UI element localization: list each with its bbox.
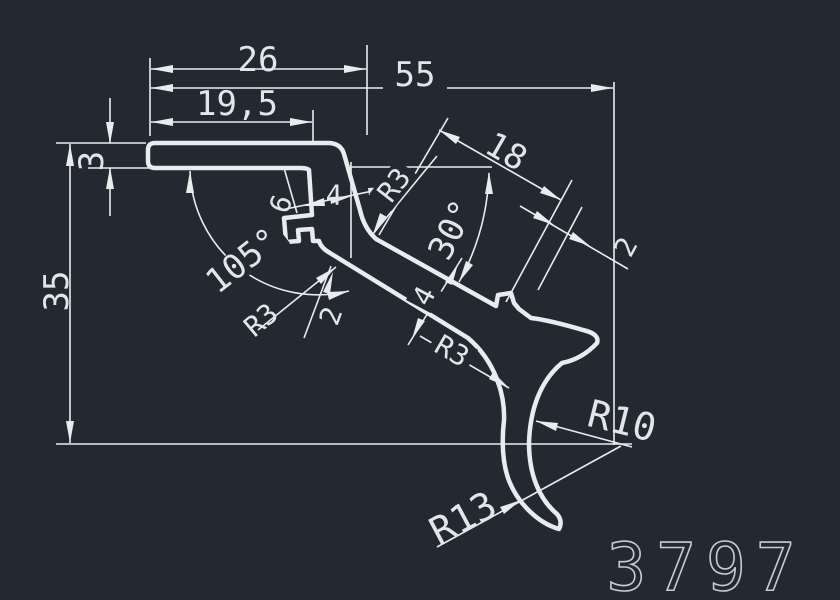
arrowhead <box>151 65 173 73</box>
dim-overall-width: 55 <box>395 55 436 95</box>
arrowhead <box>540 186 561 200</box>
dim-overall-height: 35 <box>37 271 77 312</box>
dim-inner-fillet: R3 <box>237 297 284 344</box>
arrowhead <box>186 171 194 193</box>
arrowhead <box>569 232 590 246</box>
arrowhead <box>327 291 349 300</box>
dim-flange-thickness: 3 <box>72 151 112 171</box>
arrowhead <box>485 172 493 194</box>
dim-leg-angle: 30° <box>421 194 484 267</box>
arrowhead <box>412 318 425 339</box>
arrowhead <box>344 65 366 73</box>
ext-line-18-right <box>506 180 572 302</box>
arrowhead <box>66 421 74 443</box>
arrowhead <box>151 118 173 126</box>
dim-bend-fillet: R3 <box>371 162 418 209</box>
dim-prong-thickness: 2 <box>607 232 644 262</box>
dim-hook-outer-radius: R13 <box>422 482 503 553</box>
dim-wall-width: 4 <box>326 179 343 212</box>
arrowhead <box>151 84 173 92</box>
dim-groove-lip: 2 <box>313 302 350 329</box>
arrowhead <box>106 122 114 144</box>
dim-top-width: 26 <box>238 40 279 80</box>
part-number: 3797 <box>607 529 806 600</box>
profile-outline <box>148 143 597 529</box>
drawing-canvas: 26 55 19,5 3 35 105° 6 4 R3 18 30° 2 4 R… <box>0 0 840 600</box>
dim-hook-inner-radius: R10 <box>583 391 660 450</box>
arrowhead <box>290 118 312 126</box>
dim-leg-length: 18 <box>478 124 533 179</box>
arrowhead <box>500 500 521 514</box>
arrowhead <box>459 261 473 282</box>
arrowhead <box>303 198 325 206</box>
arrowhead <box>591 84 613 92</box>
arrowhead <box>536 421 558 431</box>
drawing-viewport: 26 55 19,5 3 35 105° 6 4 R3 18 30° 2 4 R… <box>0 0 840 600</box>
arrowhead <box>439 130 460 144</box>
dim-flange-width: 19,5 <box>196 84 278 124</box>
dim-groove-depth: 6 <box>263 190 300 217</box>
